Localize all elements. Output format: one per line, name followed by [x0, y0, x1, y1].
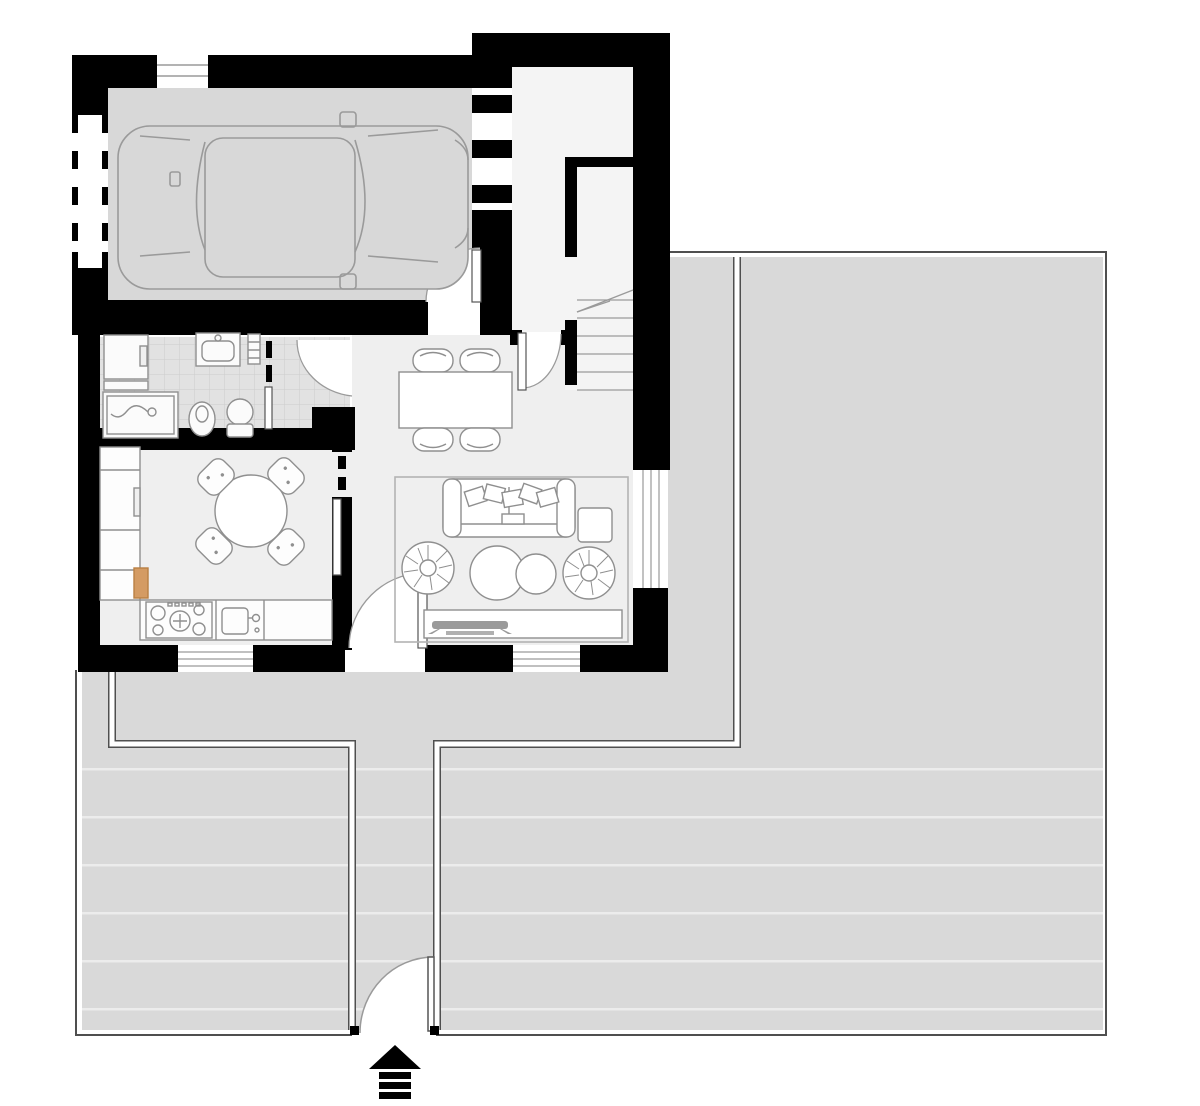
garage-vestibule-opening: [472, 88, 512, 210]
living-room-window-right: [635, 470, 668, 588]
living-room-window-bottom: [513, 645, 580, 672]
paving-stripes: [82, 752, 1103, 1030]
radiator: [248, 334, 260, 364]
side-table: [578, 508, 612, 542]
garage-door-opening: [72, 115, 108, 268]
dining-table: [399, 372, 512, 428]
bathroom-shelf: [104, 381, 148, 390]
house-right-wall-upper: [633, 33, 670, 470]
entrance-arrow-icon: [369, 1045, 421, 1099]
gate-post-left: [350, 1026, 359, 1035]
vestibule-stair-wall: [565, 157, 633, 167]
shower: [103, 392, 178, 438]
house-right-wall-lower: [633, 588, 668, 672]
stair-side-wall-lower: [565, 320, 577, 385]
bathroom-corner-wall: [312, 407, 355, 450]
washing-machine: [104, 335, 148, 379]
coffee-table-small: [516, 554, 556, 594]
sofa: [443, 479, 575, 537]
stair-side-wall-upper: [565, 167, 577, 257]
gate-leaf: [428, 957, 434, 1031]
house-left-wall: [78, 335, 100, 645]
floor-plan-drawing: [0, 0, 1200, 1106]
front-door-post-right: [561, 330, 577, 345]
vestibule-floor: [512, 67, 633, 157]
kitchen-window: [178, 645, 253, 672]
garage-vestibule-wall-top: [472, 67, 512, 88]
pouf-right: [563, 547, 615, 599]
garage-top-wall: [72, 55, 480, 88]
living-bottom-wall-left: [425, 645, 513, 672]
toilet: [227, 399, 253, 437]
garage-left-wall-upper: [72, 88, 108, 115]
floor-plan-canvas: [0, 0, 1200, 1106]
hall-floor: [512, 157, 565, 332]
garage-left-wall-lower: [72, 268, 108, 300]
gate-post-right: [430, 1026, 439, 1035]
bathroom-sink: [196, 333, 240, 366]
garage-window: [157, 55, 208, 88]
bidet: [189, 402, 215, 436]
wood-cutting-board: [134, 568, 148, 598]
pouf-left: [402, 542, 454, 594]
